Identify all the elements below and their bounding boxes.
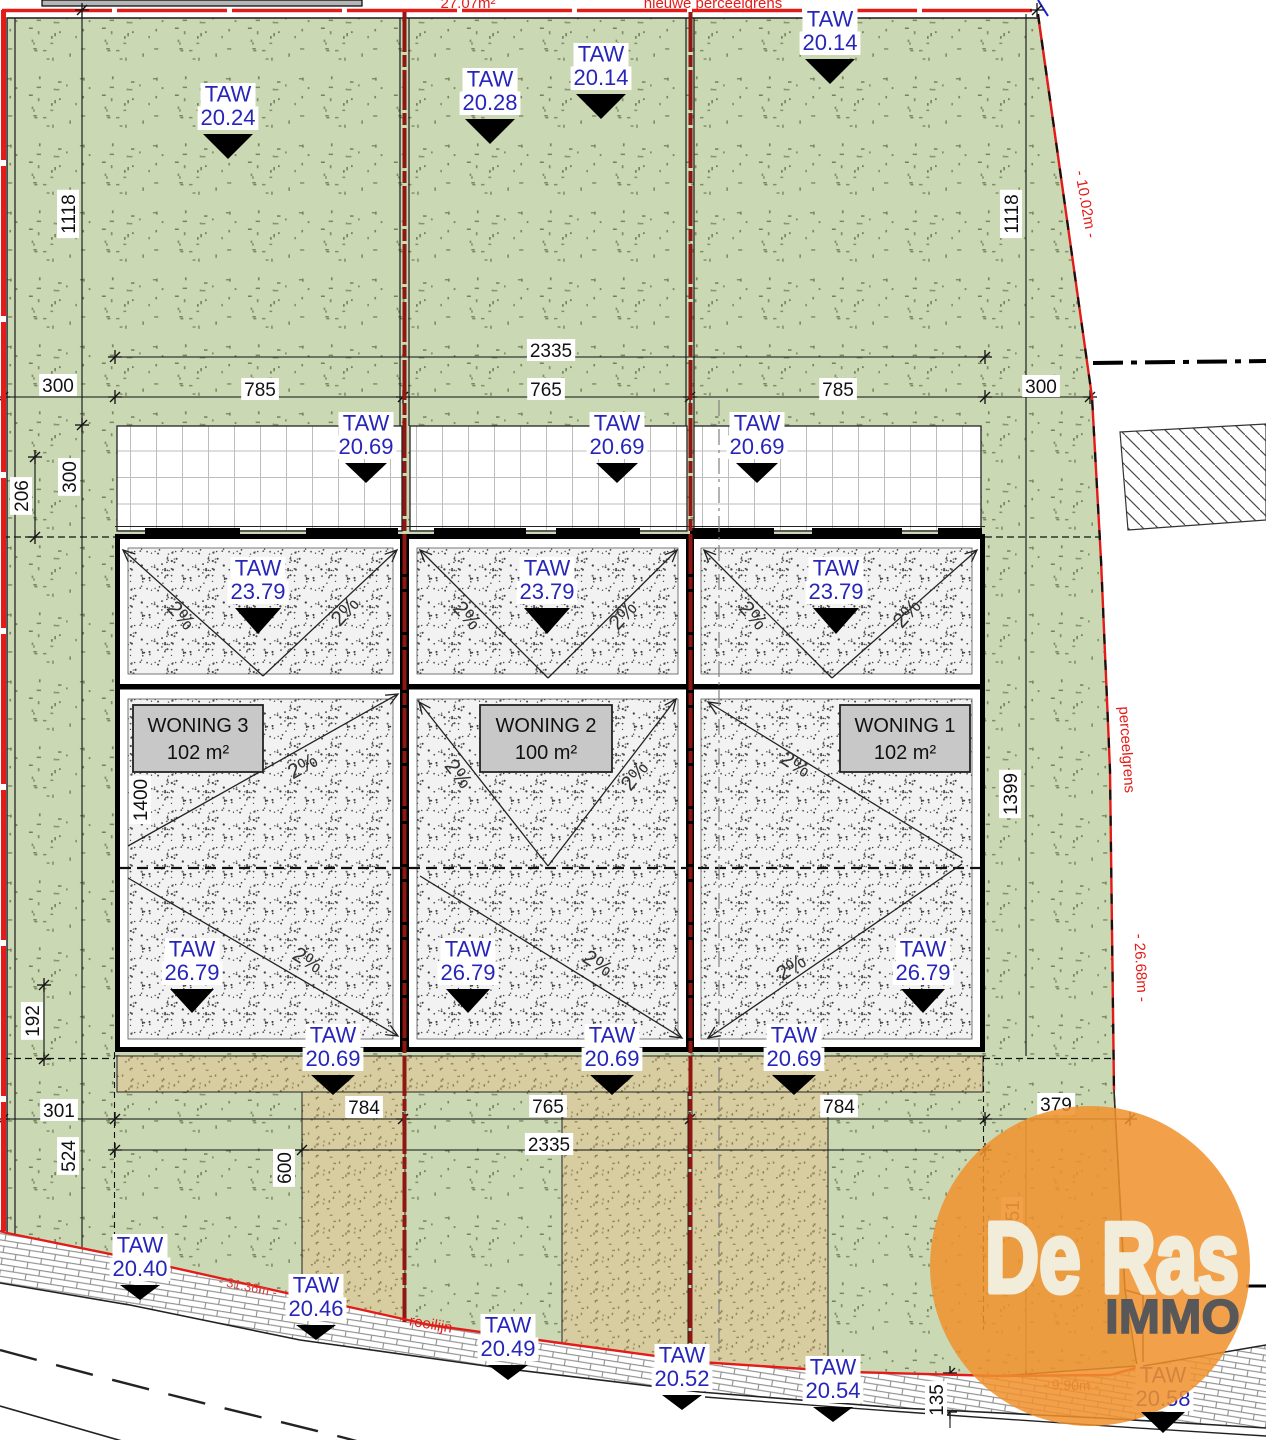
svg-text:300: 300: [42, 376, 74, 397]
svg-text:2335: 2335: [528, 1135, 570, 1156]
svg-text:TAW: TAW: [169, 937, 216, 962]
svg-text:300: 300: [1025, 377, 1057, 398]
svg-text:TAW: TAW: [293, 1273, 340, 1298]
svg-text:TAW: TAW: [117, 1233, 164, 1258]
svg-text:1118: 1118: [59, 194, 80, 233]
svg-text:23.79: 23.79: [519, 579, 574, 604]
svg-text:784: 784: [823, 1097, 855, 1118]
svg-text:WONING 3: WONING 3: [147, 715, 248, 737]
svg-text:20.69: 20.69: [589, 434, 644, 459]
svg-text:20.69: 20.69: [584, 1046, 639, 1071]
svg-text:TAW: TAW: [205, 82, 252, 107]
svg-text:nieuwe perceelgrens: nieuwe perceelgrens: [644, 0, 782, 12]
svg-text:TAW: TAW: [485, 1313, 532, 1338]
svg-text:20.28: 20.28: [462, 90, 517, 115]
svg-text:TAW: TAW: [343, 411, 390, 436]
svg-text:2335: 2335: [530, 341, 572, 362]
svg-text:TAW: TAW: [467, 67, 514, 92]
svg-text:20.14: 20.14: [802, 30, 857, 55]
svg-text:135: 135: [927, 1384, 948, 1416]
svg-text:102 m²: 102 m²: [874, 742, 937, 764]
svg-text:785: 785: [244, 380, 276, 401]
svg-text:301: 301: [43, 1101, 75, 1122]
svg-text:20.40: 20.40: [112, 1256, 167, 1281]
svg-text:- 26.68m -: - 26.68m -: [1130, 933, 1151, 1002]
svg-text:TAW: TAW: [524, 556, 571, 581]
svg-text:1399: 1399: [1001, 773, 1022, 815]
svg-text:TAW: TAW: [589, 1023, 636, 1048]
svg-text:20.69: 20.69: [338, 434, 393, 459]
svg-text:100 m²: 100 m²: [515, 742, 578, 764]
svg-text:20.69: 20.69: [729, 434, 784, 459]
svg-text:26.79: 26.79: [895, 960, 950, 985]
svg-text:TAW: TAW: [810, 1355, 857, 1380]
svg-text:TAW: TAW: [445, 937, 492, 962]
svg-text:784: 784: [348, 1098, 380, 1119]
svg-text:TAW: TAW: [310, 1023, 357, 1048]
svg-text:765: 765: [532, 1097, 564, 1118]
svg-text:TAW: TAW: [771, 1023, 818, 1048]
svg-text:TAW: TAW: [235, 556, 282, 581]
svg-text:20.52: 20.52: [654, 1366, 709, 1391]
svg-text:765: 765: [530, 380, 562, 401]
svg-text:TAW: TAW: [594, 411, 641, 436]
svg-text:20.69: 20.69: [766, 1046, 821, 1071]
svg-text:192: 192: [23, 1005, 44, 1037]
svg-text:102 m²: 102 m²: [167, 742, 230, 764]
svg-text:300: 300: [60, 461, 81, 493]
svg-text:524: 524: [59, 1140, 80, 1172]
svg-text:WONING 2: WONING 2: [495, 715, 596, 737]
svg-text:TAW: TAW: [807, 7, 854, 32]
svg-text:TAW: TAW: [734, 411, 781, 436]
svg-text:TAW: TAW: [900, 937, 947, 962]
svg-text:20.14: 20.14: [573, 65, 628, 90]
svg-text:TAW: TAW: [813, 556, 860, 581]
svg-text:23.79: 23.79: [230, 579, 285, 604]
svg-text:23.79: 23.79: [808, 579, 863, 604]
svg-text:20.69: 20.69: [305, 1046, 360, 1071]
svg-text:20.49: 20.49: [480, 1336, 535, 1361]
svg-text:20.46: 20.46: [288, 1296, 343, 1321]
svg-text:IMMO: IMMO: [1105, 1291, 1240, 1344]
svg-text:26.79: 26.79: [164, 960, 219, 985]
svg-text:27.07m²: 27.07m²: [440, 0, 495, 12]
svg-text:1118: 1118: [1002, 194, 1023, 233]
svg-text:206: 206: [12, 480, 33, 512]
svg-text:600: 600: [275, 1152, 296, 1184]
svg-text:26.79: 26.79: [440, 960, 495, 985]
svg-text:WONING 1: WONING 1: [854, 715, 955, 737]
svg-text:TAW: TAW: [659, 1343, 706, 1368]
svg-text:20.54: 20.54: [805, 1378, 860, 1403]
svg-text:20.24: 20.24: [200, 105, 255, 130]
svg-text:TAW: TAW: [578, 42, 625, 67]
svg-text:785: 785: [822, 380, 854, 401]
svg-text:1400: 1400: [131, 779, 152, 821]
